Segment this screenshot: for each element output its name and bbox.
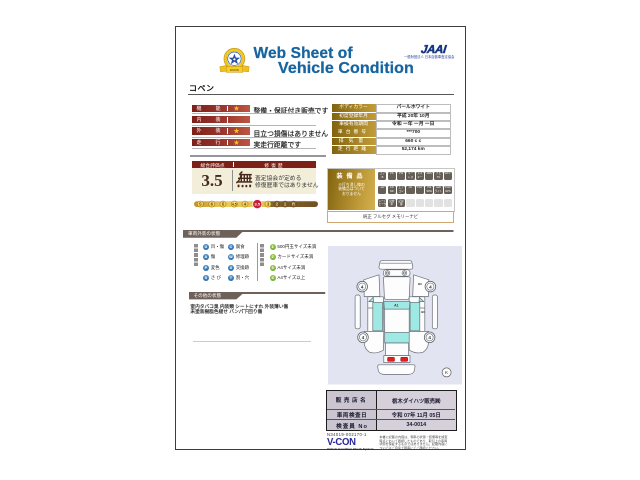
svg-text:B0: B0: [418, 282, 422, 286]
svg-text:ECOS: ECOS: [230, 67, 239, 71]
svg-text:4: 4: [361, 335, 364, 340]
svg-text:4: 4: [429, 284, 432, 289]
svg-text:B0: B0: [421, 310, 425, 314]
svg-text:R: R: [291, 202, 294, 207]
svg-text:A1: A1: [394, 304, 398, 308]
svg-text:3.5: 3.5: [254, 202, 260, 207]
svg-text:4: 4: [428, 335, 431, 340]
svg-text:4.5: 4.5: [231, 203, 236, 207]
svg-text:S: S: [198, 202, 201, 207]
svg-text:4: 4: [361, 284, 364, 289]
